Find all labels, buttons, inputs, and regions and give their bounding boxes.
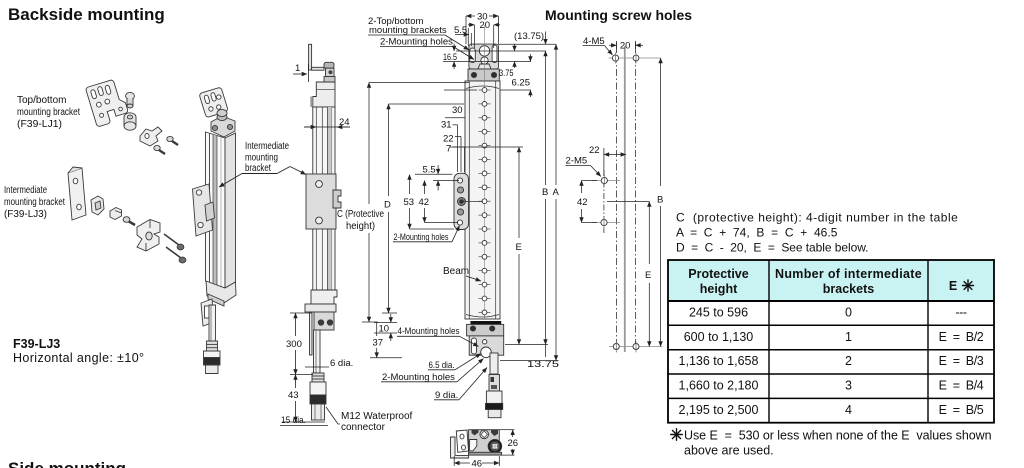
svg-text:5.5: 5.5 [454,25,467,36]
svg-text:E: E [645,270,651,281]
svg-text:mounting bracket: mounting bracket [17,107,80,118]
svg-text:E: E [516,242,522,253]
svg-text:brackets: brackets [823,282,874,296]
svg-text:10: 10 [379,324,390,335]
svg-text:E = B/3: E = B/3 [939,354,984,368]
svg-text:5.5: 5.5 [423,165,436,176]
svg-text:Top/bottom: Top/bottom [17,95,66,106]
svg-text:1: 1 [295,63,300,74]
svg-text:1: 1 [845,330,852,344]
svg-text:mounting brackets: mounting brackets [369,25,447,36]
svg-text:Mounting screw holes: Mounting screw holes [545,7,692,23]
svg-text:9 dia.: 9 dia. [435,390,458,401]
svg-text:Beam: Beam [443,266,469,277]
svg-text:46: 46 [472,459,483,468]
svg-text:Intermediate: Intermediate [4,185,47,196]
svg-text:26: 26 [508,438,519,449]
svg-text:30: 30 [452,105,463,116]
svg-text:0: 0 [845,306,852,320]
svg-text:7: 7 [446,144,451,155]
svg-text:Backside mounting: Backside mounting [8,5,165,24]
svg-text:connector: connector [341,422,386,433]
svg-text:mounting bracket: mounting bracket [4,197,65,208]
svg-text:E = B/5: E = B/5 [939,403,984,417]
svg-text:C (protective height): 4-digi: C (protective height): 4-digit number in… [676,211,958,225]
svg-text:mounting: mounting [245,153,278,164]
svg-text:37: 37 [373,338,384,349]
svg-text:4-M5: 4-M5 [583,36,605,47]
svg-text:31: 31 [441,120,452,131]
svg-text:1,660 to 2,180: 1,660 to 2,180 [679,379,759,393]
svg-text:600 to 1,130: 600 to 1,130 [684,330,754,344]
svg-text:15 dia.: 15 dia. [281,415,306,426]
svg-text:Protective: Protective [688,267,748,281]
svg-text:20: 20 [620,40,631,51]
svg-text:53: 53 [404,197,415,208]
svg-text:A = C + 74, B = C + 4: A = C + 74, B = C + 46.5 [676,226,838,240]
svg-text:D = C - 20, E = See tab: D = C - 20, E = See table below. [676,241,868,255]
svg-text:6 dia.: 6 dia. [330,358,353,369]
svg-text:2-Mounting holes: 2-Mounting holes [394,232,449,243]
svg-text:1,136 to 1,658: 1,136 to 1,658 [679,354,759,368]
svg-text:D: D [384,200,391,211]
svg-text:Use E = 530 or less when non: Use E = 530 or less when none of the E v… [684,429,992,443]
svg-text:bracket: bracket [245,163,271,174]
svg-text:F39-LJ3: F39-LJ3 [13,337,60,351]
svg-text:2-Mounting holes: 2-Mounting holes [380,37,453,48]
svg-text:3: 3 [845,379,852,393]
svg-text:2: 2 [845,354,852,368]
svg-text:Side mounting: Side mounting [8,459,126,468]
svg-text:24: 24 [339,117,350,128]
svg-text:B: B [657,195,663,206]
svg-text:300: 300 [286,339,302,350]
svg-text:E = B/2: E = B/2 [939,330,984,344]
svg-text:---: --- [955,306,967,320]
svg-text:2-Mounting holes: 2-Mounting holes [382,372,455,383]
svg-text:Number of intermediate: Number of intermediate [775,267,922,281]
svg-text:E: E [949,279,957,293]
svg-text:42: 42 [577,197,588,208]
svg-text:20: 20 [480,20,491,31]
svg-text:(13.75): (13.75) [514,31,544,42]
svg-text:(F39-LJ1): (F39-LJ1) [17,119,62,130]
svg-text:(F39-LJ3): (F39-LJ3) [4,209,47,220]
svg-text:22: 22 [589,145,600,156]
svg-text:245 to 596: 245 to 596 [689,306,748,320]
svg-text:C (Protective: C (Protective [337,209,384,220]
svg-text:above are used.: above are used. [684,444,774,458]
svg-text:6.25: 6.25 [512,78,531,89]
svg-text:43: 43 [288,390,299,401]
svg-text:Intermediate: Intermediate [245,141,289,152]
svg-text:4: 4 [845,403,852,417]
svg-text:E = B/4: E = B/4 [939,379,984,393]
svg-text:2,195 to 2,500: 2,195 to 2,500 [679,403,759,417]
svg-text:M12 Waterproof: M12 Waterproof [341,411,413,422]
svg-text:4-Mounting holes: 4-Mounting holes [398,326,460,337]
svg-text:A: A [553,187,560,198]
svg-text:Horizontal angle: ±10°: Horizontal angle: ±10° [13,351,144,365]
svg-text:16.5: 16.5 [443,52,457,63]
svg-text:2-M5: 2-M5 [566,156,588,167]
svg-text:42: 42 [419,197,430,208]
svg-text:13.75: 13.75 [527,359,559,370]
svg-text:B: B [542,187,548,198]
svg-text:6.5 dia.: 6.5 dia. [429,360,455,371]
svg-text:height): height) [346,221,375,232]
svg-text:height: height [700,282,738,296]
